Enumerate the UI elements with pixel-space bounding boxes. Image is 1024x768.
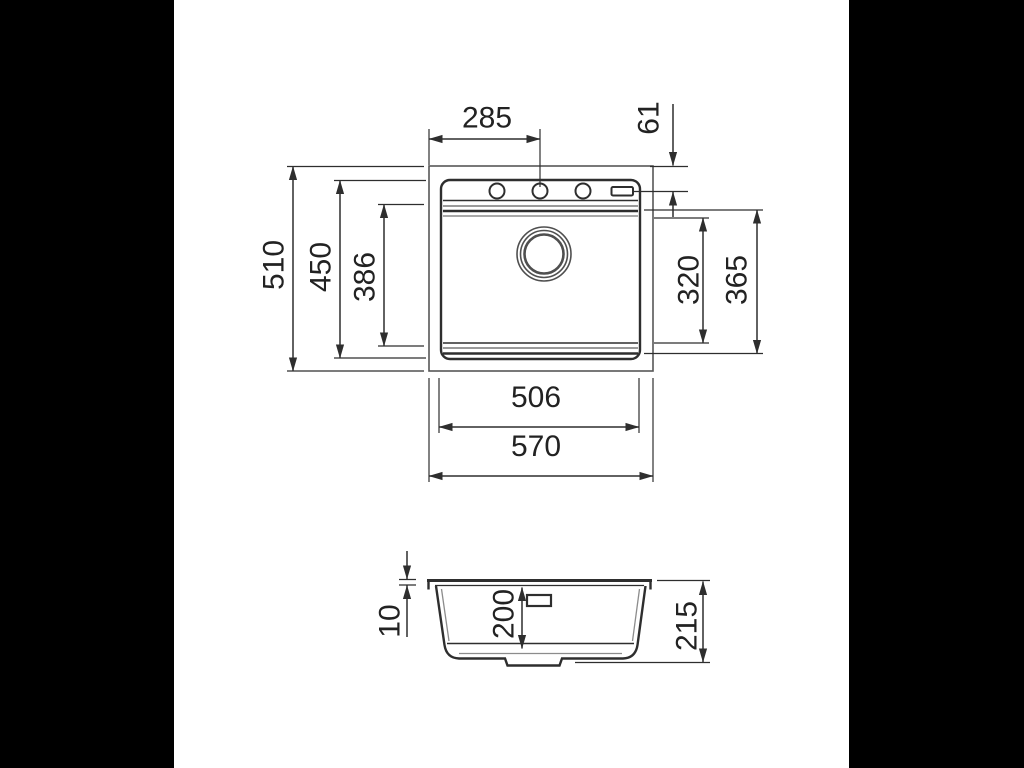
dim-450-label: 450 (305, 242, 338, 292)
dim-365-label: 365 (721, 255, 754, 305)
dim-61-label: 61 (633, 101, 666, 134)
tap-hole-left (490, 184, 505, 199)
dim-215: 215 (575, 581, 710, 663)
dim-320-label: 320 (673, 255, 706, 305)
blueprint-page: { "colors": { "background": "#000000", "… (0, 0, 1024, 768)
drain-hole (517, 227, 571, 281)
side-view: 10 200 215 (374, 551, 711, 666)
top-view: 285 61 510 450 386 (258, 101, 764, 482)
dim-285-label: 285 (462, 102, 512, 135)
dim-200: 200 (488, 588, 523, 649)
dim-510-label: 510 (258, 240, 291, 290)
bowl-bottom-ledge-lines (443, 343, 638, 354)
dim-386: 386 (349, 205, 425, 347)
dim-10: 10 (374, 551, 417, 638)
dim-285: 285 (429, 102, 540, 188)
bowl-top-ledge-lines (443, 201, 638, 217)
dim-200-label: 200 (488, 589, 521, 639)
tap-hole-right (576, 184, 591, 199)
dim-215-label: 215 (671, 601, 704, 651)
overflow-hole-side (527, 595, 551, 606)
dim-506-label: 506 (511, 381, 561, 414)
dim-10-label: 10 (374, 604, 407, 637)
rim-profile (427, 580, 652, 590)
dim-570-label: 570 (511, 430, 561, 463)
dim-320: 320 (654, 218, 709, 343)
overflow-slot (612, 187, 634, 196)
dim-386-label: 386 (349, 252, 382, 302)
dim-506: 506 (439, 378, 639, 433)
sink-technical-drawing: 285 61 510 450 386 (0, 0, 1024, 768)
